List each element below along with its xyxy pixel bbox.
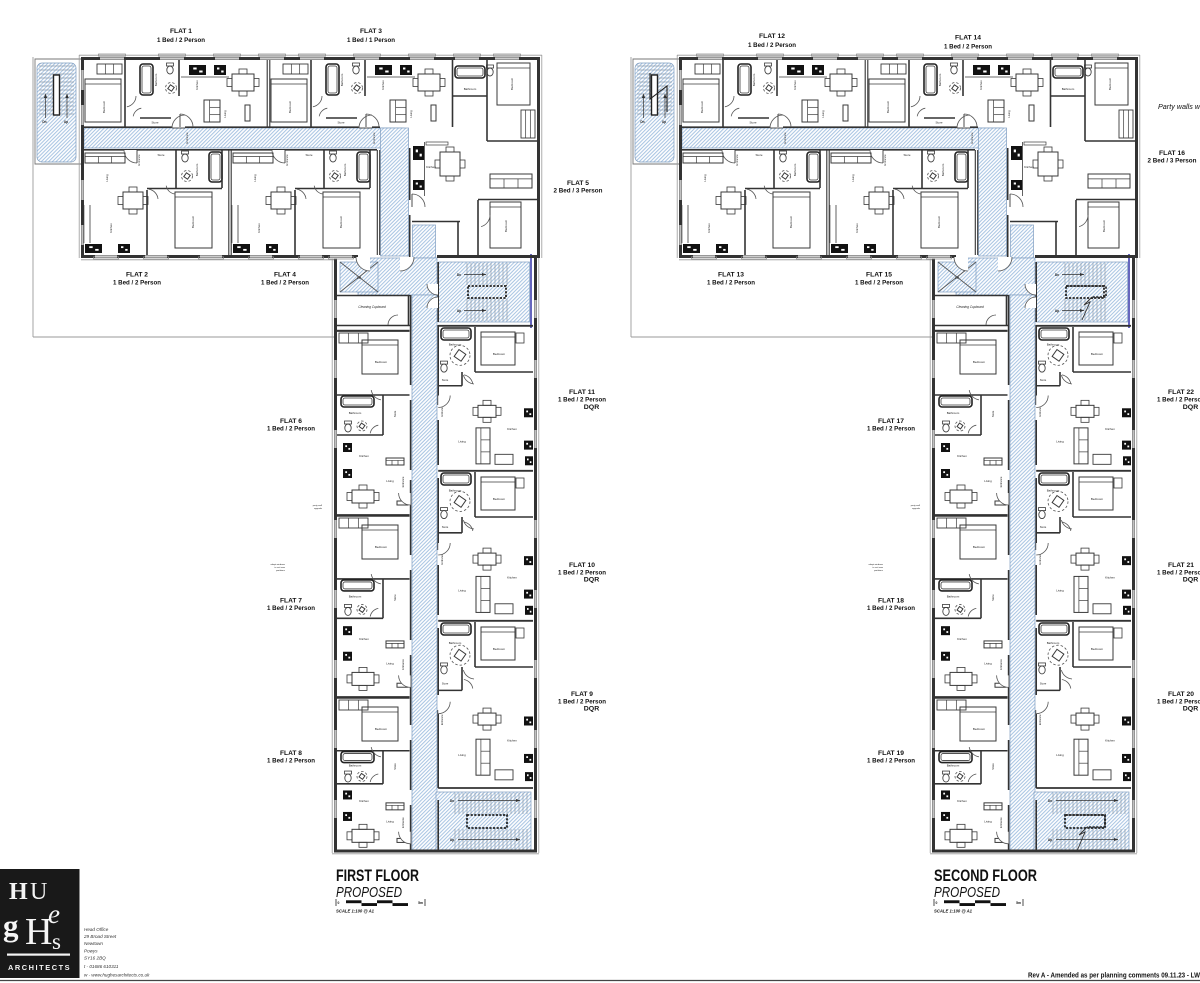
svg-text:Party walls w: Party walls w: [1158, 104, 1200, 111]
svg-text:1 Bed / 2 Person: 1 Bed / 2 Person: [944, 44, 992, 51]
svg-text:SY16 2BQ: SY16 2BQ: [84, 955, 106, 960]
svg-text:H: H: [9, 879, 28, 905]
svg-text:1 Bed / 1 Person: 1 Bed / 1 Person: [347, 37, 395, 44]
svg-text:FLAT 3: FLAT 3: [360, 28, 382, 35]
svg-text:FLAT 9: FLAT 9: [571, 691, 593, 698]
svg-text:t - 01686 610311: t - 01686 610311: [84, 964, 119, 969]
svg-text:SECOND FLOOR: SECOND FLOOR: [934, 867, 1037, 885]
svg-text:FIRST FLOOR: FIRST FLOOR: [336, 867, 419, 885]
svg-text:FLAT 17: FLAT 17: [878, 418, 904, 425]
svg-text:FLAT 18: FLAT 18: [878, 598, 904, 605]
svg-text:FLAT 5: FLAT 5: [567, 180, 589, 187]
svg-text:1 Bed / 2 Person: 1 Bed / 2 Person: [707, 280, 755, 287]
svg-text:1 Bed / 2 Person: 1 Bed / 2 Person: [261, 280, 309, 287]
svg-text:1 Bed / 2 Person: 1 Bed / 2 Person: [558, 569, 606, 576]
svg-text:1 Bed / 2 Person: 1 Bed / 2 Person: [558, 698, 606, 705]
svg-text:FLAT 21: FLAT 21: [1168, 562, 1194, 569]
svg-text:FLAT 15: FLAT 15: [866, 272, 892, 279]
svg-text:1 Bed / 2 Person: 1 Bed / 2 Person: [867, 758, 915, 765]
svg-text:29 Broad Street: 29 Broad Street: [83, 934, 117, 939]
svg-text:FLAT 1: FLAT 1: [170, 28, 192, 35]
svg-text:DQR: DQR: [1183, 404, 1199, 411]
svg-text:FLAT 8: FLAT 8: [280, 750, 302, 757]
svg-text:FLAT 16: FLAT 16: [1159, 150, 1185, 157]
svg-text:1 Bed / 2 Person: 1 Bed / 2 Person: [1157, 698, 1200, 705]
svg-text:1 Bed / 2 Person: 1 Bed / 2 Person: [1157, 397, 1200, 404]
svg-text:0: 0: [936, 901, 938, 905]
svg-text:FLAT 13: FLAT 13: [718, 272, 744, 279]
svg-text:DQR: DQR: [584, 577, 600, 584]
svg-text:1 Bed / 2 Person: 1 Bed / 2 Person: [267, 605, 315, 612]
svg-text:DQR: DQR: [584, 706, 600, 713]
svg-text:DQR: DQR: [584, 404, 600, 411]
svg-text:FLAT 22: FLAT 22: [1168, 389, 1194, 396]
svg-text:1 Bed / 2 Person: 1 Bed / 2 Person: [558, 397, 606, 404]
svg-text:FLAT 4: FLAT 4: [274, 272, 296, 279]
svg-text:FLAT 20: FLAT 20: [1168, 691, 1194, 698]
svg-text:FLAT 19: FLAT 19: [878, 750, 904, 757]
svg-text:1 Bed / 2 Person: 1 Bed / 2 Person: [867, 426, 915, 433]
svg-text:2 Bed / 3 Person: 2 Bed / 3 Person: [1148, 158, 1197, 165]
svg-text:SCALE 1:100 @ A1: SCALE 1:100 @ A1: [336, 909, 375, 914]
svg-text:FLAT 10: FLAT 10: [569, 562, 595, 569]
svg-text:1 Bed / 2 Person: 1 Bed / 2 Person: [267, 758, 315, 765]
svg-text:1 Bed / 2 Person: 1 Bed / 2 Person: [748, 42, 796, 49]
svg-text:U: U: [30, 879, 47, 905]
svg-text:0: 0: [338, 901, 340, 905]
svg-text:1 Bed / 2 Person: 1 Bed / 2 Person: [267, 426, 315, 433]
svg-text:2 Bed / 3 Person: 2 Bed / 3 Person: [554, 188, 603, 195]
svg-text:PROPOSED: PROPOSED: [336, 885, 402, 901]
svg-text:Head Office: Head Office: [84, 927, 109, 932]
svg-text:DQR: DQR: [1183, 706, 1199, 713]
svg-text:FLAT 2: FLAT 2: [126, 272, 148, 279]
svg-text:e: e: [48, 899, 60, 929]
svg-text:PROPOSED: PROPOSED: [934, 885, 1000, 901]
svg-text:1 Bed / 2 Person: 1 Bed / 2 Person: [157, 37, 205, 44]
svg-text:1 Bed / 2 Person: 1 Bed / 2 Person: [113, 280, 161, 287]
svg-text:Newtown: Newtown: [84, 941, 103, 946]
svg-text:w - www.hughesarchitects.co.uk: w - www.hughesarchitects.co.uk: [84, 973, 150, 978]
svg-text:FLAT 14: FLAT 14: [955, 35, 981, 42]
svg-text:ARCHITECTS: ARCHITECTS: [8, 963, 71, 972]
svg-text:1 Bed / 2 Person: 1 Bed / 2 Person: [867, 605, 915, 612]
svg-text:1 Bed / 2 Person: 1 Bed / 2 Person: [855, 280, 903, 287]
svg-text:1 Bed / 2 Person: 1 Bed / 2 Person: [1157, 569, 1200, 576]
svg-text:SCALE 1:100 @ A1: SCALE 1:100 @ A1: [934, 909, 973, 914]
svg-text:FLAT 6: FLAT 6: [280, 418, 302, 425]
svg-text:FLAT 12: FLAT 12: [759, 33, 785, 40]
svg-text:Rev A - Amended as per plannin: Rev A - Amended as per planning comments…: [1028, 971, 1200, 980]
svg-text:5m: 5m: [1016, 901, 1021, 905]
svg-text:Powys: Powys: [84, 948, 98, 953]
svg-text:g: g: [3, 908, 19, 943]
svg-text:DQR: DQR: [1183, 577, 1199, 584]
svg-text:FLAT 11: FLAT 11: [569, 389, 595, 396]
svg-text:FLAT 7: FLAT 7: [280, 598, 302, 605]
svg-text:5m: 5m: [418, 901, 423, 905]
svg-text:s: s: [52, 929, 61, 954]
